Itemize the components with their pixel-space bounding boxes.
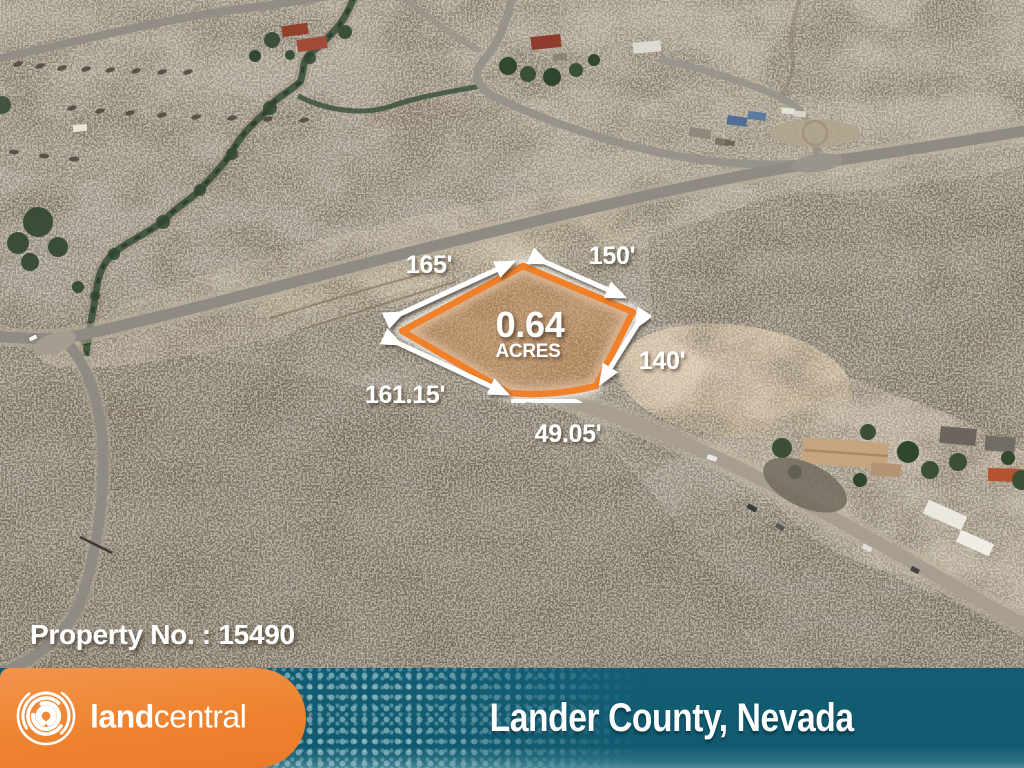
brand-name: landcentral (90, 698, 246, 735)
brand-panel: landcentral (0, 668, 306, 768)
footer-bar: Lander County, Nevada landcentral (0, 668, 1024, 768)
acreage-unit: ACRES (495, 341, 560, 362)
brand-name-light: central (154, 698, 247, 734)
dimension-label-northeast: 150' (589, 242, 635, 270)
county-label-text: Lander County, Nevada (490, 696, 854, 741)
landcentral-logo-icon (14, 684, 78, 748)
property-flyer: 165' 150' 140' 49.05' 161.15' 0.64 ACRES… (0, 0, 1024, 768)
acreage-value: 0.64 (496, 304, 565, 345)
dimension-arrow-south (527, 400, 577, 402)
dimension-label-southwest: 161.15' (365, 381, 445, 409)
brand-name-bold: land (90, 698, 154, 734)
dimension-label-east: 140' (639, 347, 685, 375)
satellite-map: 165' 150' 140' 49.05' 161.15' 0.64 ACRES… (0, 0, 1024, 768)
county-label: Lander County, Nevada (306, 668, 1024, 768)
property-number: Property No. : 15490 (30, 619, 295, 650)
dimension-label-south: 49.05' (535, 420, 602, 448)
dimension-label-northwest: 165' (406, 251, 452, 279)
